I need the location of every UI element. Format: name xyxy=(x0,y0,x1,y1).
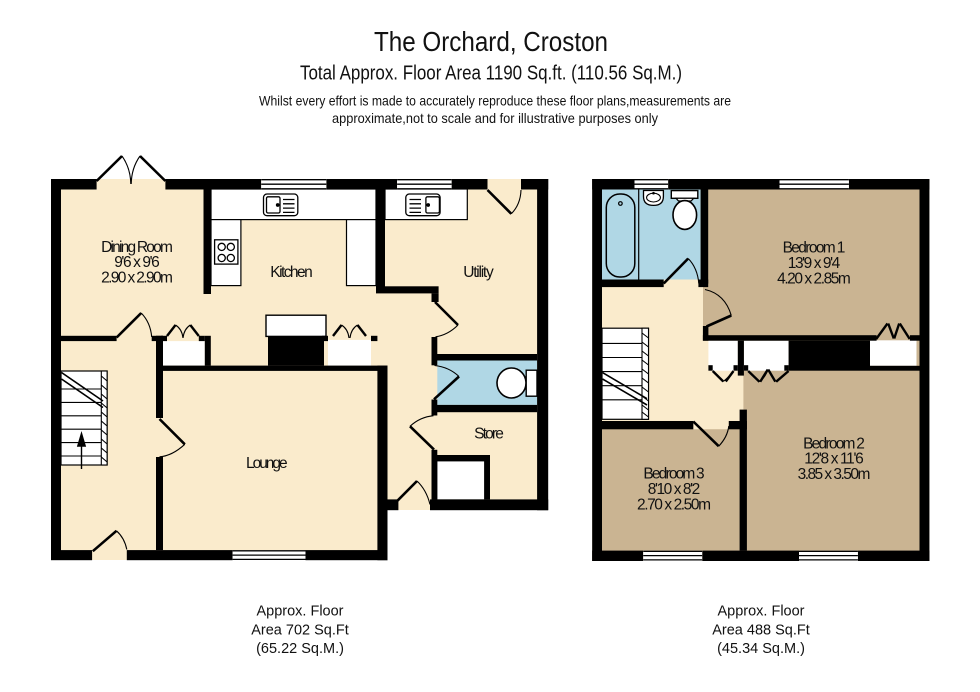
svg-text:Store: Store xyxy=(474,426,504,443)
svg-text:13'9 x 9'4: 13'9 x 9'4 xyxy=(788,255,841,272)
svg-text:approximate,not to scale and f: approximate,not to scale and for illustr… xyxy=(332,110,658,126)
svg-text:2.90 x 2.90m: 2.90 x 2.90m xyxy=(101,269,173,286)
svg-text:The Orchard, Croston: The Orchard, Croston xyxy=(374,26,608,57)
svg-text:Approx. Floor: Approx. Floor xyxy=(256,603,343,619)
svg-text:Lounge: Lounge xyxy=(246,455,288,472)
svg-text:4.20 x 2.85m: 4.20 x 2.85m xyxy=(777,271,851,288)
svg-text:Utility: Utility xyxy=(463,264,494,281)
svg-text:Area 488 Sq.Ft: Area 488 Sq.Ft xyxy=(712,623,810,639)
svg-text:Bedroom 3: Bedroom 3 xyxy=(643,466,704,483)
svg-text:Total Approx. Floor Area 1190: Total Approx. Floor Area 1190 Sq.ft. (11… xyxy=(300,62,682,84)
svg-text:(65.22 Sq.M.): (65.22 Sq.M.) xyxy=(256,641,344,657)
svg-text:8'10 x 8'2: 8'10 x 8'2 xyxy=(648,481,701,498)
svg-text:Kitchen: Kitchen xyxy=(270,264,312,281)
svg-text:Whilst every effort is made to: Whilst every effort is made to accuratel… xyxy=(259,93,731,109)
svg-text:2.70 x 2.50m: 2.70 x 2.50m xyxy=(637,497,711,514)
svg-text:(45.34 Sq.M.): (45.34 Sq.M.) xyxy=(717,641,805,657)
svg-text:3.85 x 3.50m: 3.85 x 3.50m xyxy=(798,466,871,483)
svg-text:Area 702 Sq.Ft: Area 702 Sq.Ft xyxy=(251,623,349,639)
svg-text:Approx. Floor: Approx. Floor xyxy=(717,603,804,619)
svg-text:Bedroom 1: Bedroom 1 xyxy=(783,240,846,257)
